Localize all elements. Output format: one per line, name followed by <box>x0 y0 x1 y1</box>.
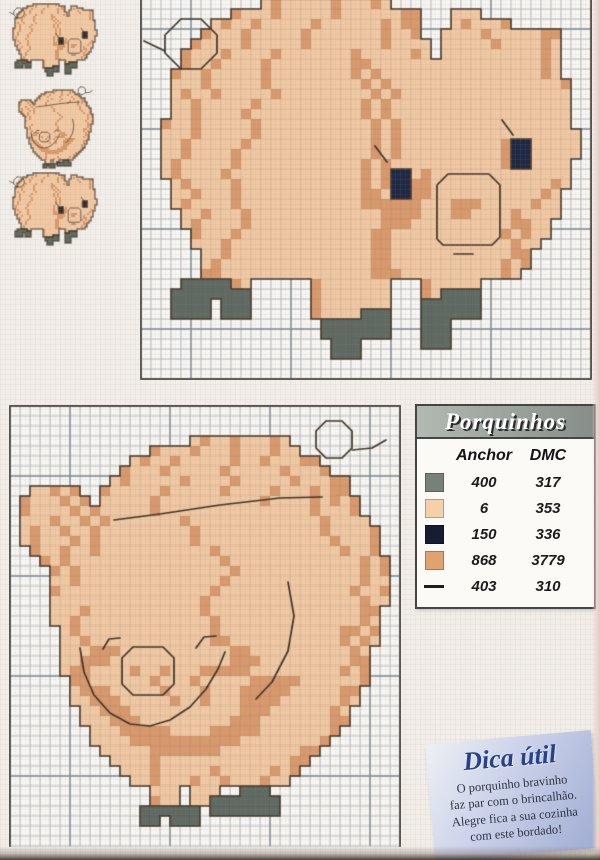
dmc-code: 353 <box>517 500 579 517</box>
legend-rows: 40031763531503368683779403310 <box>417 469 594 599</box>
dmc-code: 310 <box>517 578 579 595</box>
dmc-code: 3779 <box>517 552 579 569</box>
page-edge-bottom-shadow <box>0 846 600 860</box>
color-swatch <box>425 551 444 570</box>
color-swatch <box>425 473 444 492</box>
page-edge-right <box>592 0 600 860</box>
legend-symbol <box>417 525 451 544</box>
dmc-code: 336 <box>517 526 579 543</box>
anchor-code: 150 <box>451 526 517 543</box>
magazine-page: Porquinhos Anchor DMC 400317635315033686… <box>0 0 600 860</box>
legend-row: 403310 <box>417 573 594 599</box>
preview-pig-face <box>16 83 96 173</box>
preview-pig-side-bottom <box>8 172 100 250</box>
cross-stitch-chart-face-pig <box>9 405 401 847</box>
tip-text: O porquinho bravinhofaz par com o brinca… <box>433 769 596 848</box>
legend-symbol <box>417 499 451 518</box>
color-swatch <box>425 525 444 544</box>
legend-bottom-padding <box>417 599 594 607</box>
legend-header: Anchor DMC <box>417 443 594 469</box>
legend-symbol <box>417 551 451 570</box>
legend-symbol <box>417 473 451 492</box>
backstitch-line-symbol <box>424 585 444 588</box>
legend-row: 150336 <box>417 521 594 547</box>
legend-title-bar: Porquinhos <box>417 406 594 439</box>
legend-row: 8683779 <box>417 547 594 573</box>
legend-symbol <box>417 585 451 588</box>
legend-title: Porquinhos <box>445 409 566 435</box>
preview-pig-side-top <box>8 3 100 81</box>
legend-row: 400317 <box>417 469 594 495</box>
thread-legend: Porquinhos Anchor DMC 400317635315033686… <box>415 404 596 609</box>
anchor-code: 868 <box>451 552 517 569</box>
legend-column-anchor: Anchor <box>451 447 517 465</box>
anchor-code: 400 <box>451 474 517 491</box>
anchor-code: 403 <box>451 578 517 595</box>
cross-stitch-chart-side-pig <box>140 0 592 380</box>
legend-column-dmc: DMC <box>517 447 579 465</box>
color-swatch <box>425 499 444 518</box>
dmc-code: 317 <box>517 474 579 491</box>
legend-row: 6353 <box>417 495 594 521</box>
anchor-code: 6 <box>451 500 517 517</box>
tip-box: Dica útil O porquinho bravinhofaz par co… <box>425 730 600 860</box>
